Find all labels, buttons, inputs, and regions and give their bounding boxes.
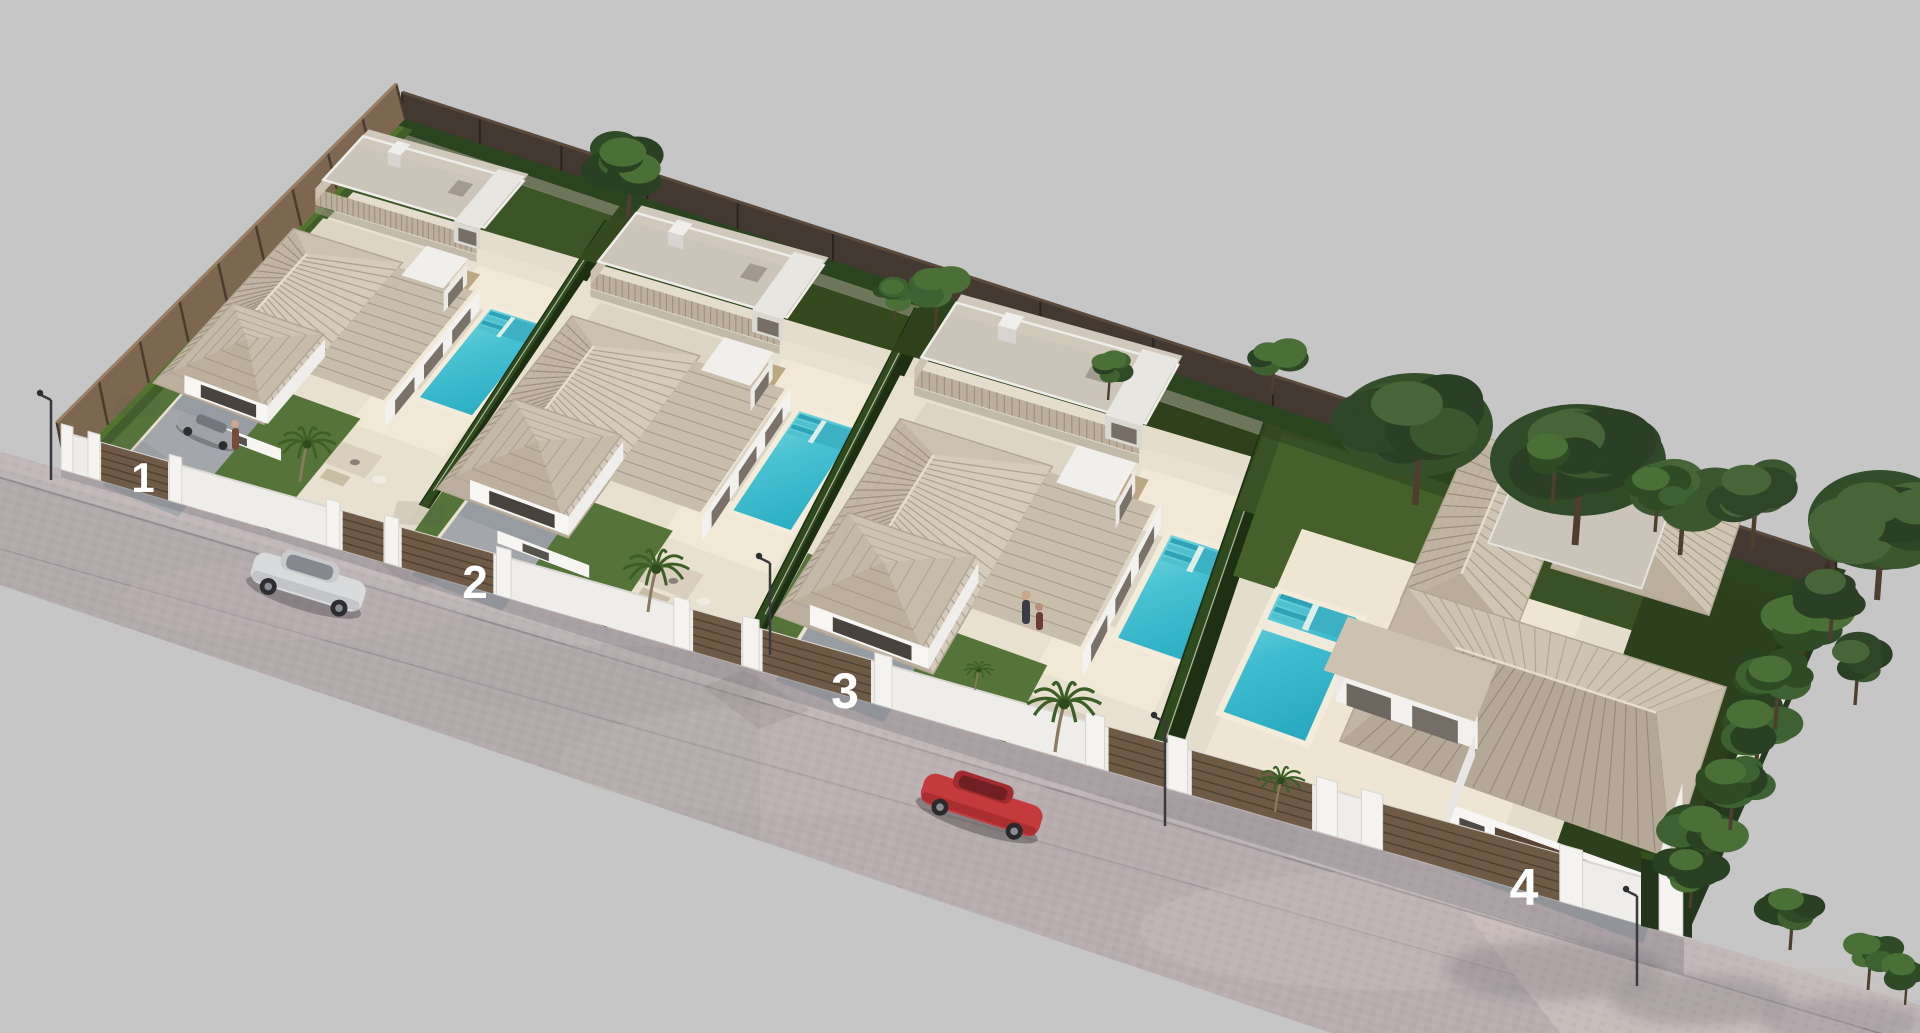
svg-text:2: 2 [462,556,488,608]
svg-text:1: 1 [131,454,154,501]
svg-text:4: 4 [1510,859,1539,917]
svg-text:3: 3 [831,663,859,719]
